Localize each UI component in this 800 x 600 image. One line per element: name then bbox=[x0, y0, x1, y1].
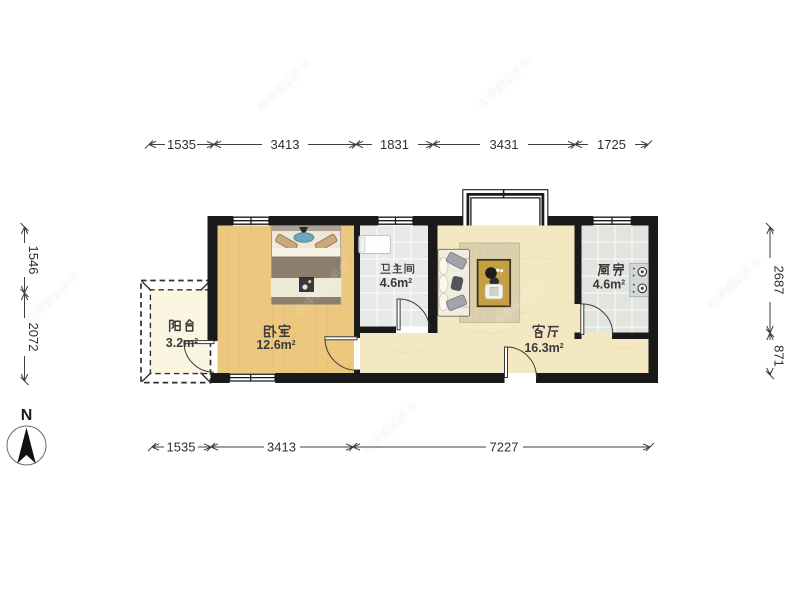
svg-text:16.3m2: 16.3m2 bbox=[524, 341, 563, 355]
svg-text:1725: 1725 bbox=[597, 137, 626, 152]
svg-text:1546: 1546 bbox=[26, 246, 41, 275]
svg-text:2072: 2072 bbox=[26, 323, 41, 352]
svg-text:12.6m2: 12.6m2 bbox=[256, 338, 295, 352]
svg-text:N: N bbox=[21, 407, 33, 424]
svg-text:3431: 3431 bbox=[490, 137, 519, 152]
svg-text:3.2m2: 3.2m2 bbox=[166, 336, 199, 350]
svg-text:3413: 3413 bbox=[267, 440, 296, 455]
svg-text:4.6m2: 4.6m2 bbox=[593, 278, 626, 292]
svg-text:4.6m2: 4.6m2 bbox=[380, 276, 413, 290]
svg-text:3413: 3413 bbox=[271, 137, 300, 152]
svg-text:1535: 1535 bbox=[167, 440, 196, 455]
svg-text:871: 871 bbox=[772, 345, 787, 367]
svg-text:1831: 1831 bbox=[380, 137, 409, 152]
svg-text:2687: 2687 bbox=[772, 266, 787, 295]
svg-text:7227: 7227 bbox=[490, 440, 519, 455]
svg-text:1535: 1535 bbox=[167, 137, 196, 152]
